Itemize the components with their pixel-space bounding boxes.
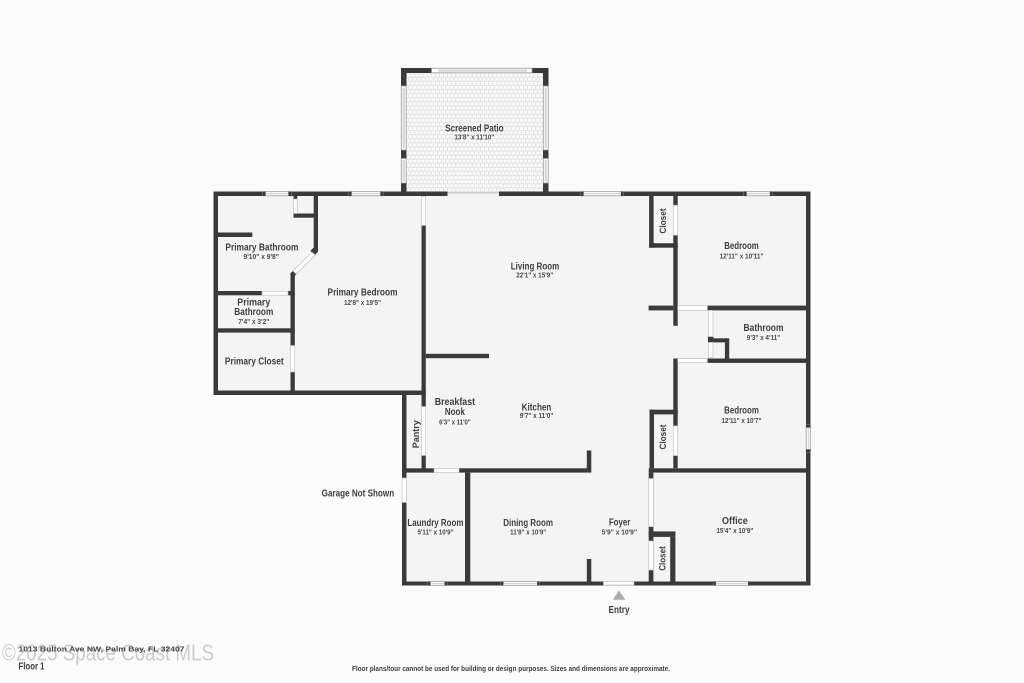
svg-text:12'11" x 10'11": 12'11" x 10'11" bbox=[720, 251, 764, 260]
svg-text:9'3" x 4'11": 9'3" x 4'11" bbox=[747, 333, 781, 342]
svg-text:1013 Bulton Ave NW, Palm Bay,: 1013 Bulton Ave NW, Palm Bay, FL 32407 bbox=[19, 644, 185, 653]
svg-text:Closet: Closet bbox=[657, 425, 668, 450]
svg-text:Floor plans/tour cannot be use: Floor plans/tour cannot be used for buil… bbox=[352, 666, 670, 673]
svg-text:9'7" x 11'0": 9'7" x 11'0" bbox=[520, 411, 554, 420]
svg-text:22'1" x 15'9": 22'1" x 15'9" bbox=[516, 270, 553, 279]
svg-text:Primary Closet: Primary Closet bbox=[225, 356, 284, 367]
svg-text:6'3" x 11'0": 6'3" x 11'0" bbox=[439, 418, 471, 427]
svg-text:Nook: Nook bbox=[445, 407, 465, 418]
svg-text:Closet: Closet bbox=[657, 208, 668, 233]
svg-text:12'8" x 19'5": 12'8" x 19'5" bbox=[344, 298, 381, 307]
svg-text:11'8" x 10'9": 11'8" x 10'9" bbox=[510, 528, 546, 537]
svg-text:Entry: Entry bbox=[608, 605, 630, 616]
svg-text:12'11" x 10'7": 12'11" x 10'7" bbox=[722, 416, 762, 425]
svg-text:Floor 1: Floor 1 bbox=[19, 661, 45, 672]
svg-text:5'9" x 10'9": 5'9" x 10'9" bbox=[602, 528, 638, 537]
svg-text:15'4" x 10'9": 15'4" x 10'9" bbox=[716, 526, 753, 535]
svg-text:5'11" x 10'9": 5'11" x 10'9" bbox=[417, 528, 453, 537]
svg-text:13'8" x 11'10": 13'8" x 11'10" bbox=[454, 133, 494, 142]
svg-text:Closet: Closet bbox=[657, 546, 668, 571]
svg-text:Garage Not Shown: Garage Not Shown bbox=[322, 488, 395, 499]
svg-text:9'10" x 9'8": 9'10" x 9'8" bbox=[244, 252, 280, 261]
svg-text:Pantry: Pantry bbox=[410, 420, 421, 449]
svg-text:7'4" x 3'2": 7'4" x 3'2" bbox=[238, 317, 269, 326]
